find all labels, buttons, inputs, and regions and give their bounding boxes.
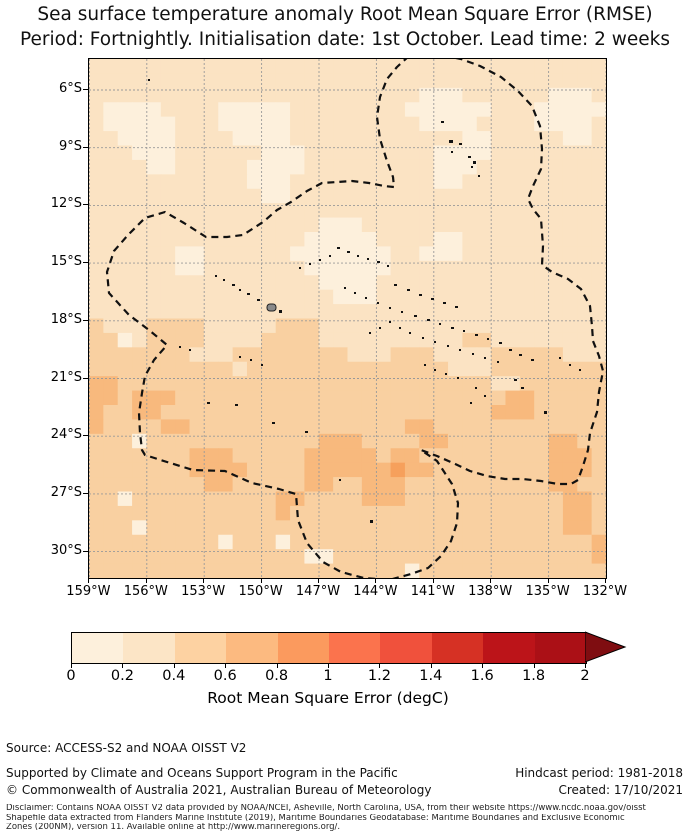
heatmap-cell xyxy=(319,275,334,290)
heatmap-cell xyxy=(462,117,477,132)
island-mark xyxy=(473,161,476,164)
heatmap-cell xyxy=(477,362,492,377)
heatmap-cell xyxy=(161,246,176,261)
heatmap-cell xyxy=(462,218,477,233)
heatmap-cell xyxy=(362,275,377,290)
heatmap-cell xyxy=(118,463,133,478)
heatmap-cell xyxy=(290,405,305,420)
heatmap-cell xyxy=(491,463,506,478)
heatmap-cell xyxy=(89,362,104,377)
heatmap-cell xyxy=(348,506,363,521)
heatmap-cell xyxy=(419,405,434,420)
tahiti-island xyxy=(267,304,276,311)
island-mark xyxy=(207,402,210,404)
heatmap-cell xyxy=(577,535,592,550)
heatmap-cell xyxy=(577,405,592,420)
y-tick-label: 27°S xyxy=(36,485,82,501)
heatmap-cell xyxy=(491,362,506,377)
heatmap-cell xyxy=(89,463,104,478)
heatmap-cell xyxy=(319,232,334,247)
heatmap-cell xyxy=(304,102,319,117)
heatmap-cell xyxy=(419,117,434,132)
heatmap-cell xyxy=(491,535,506,550)
heatmap-cell xyxy=(103,275,118,290)
heatmap-cell xyxy=(247,73,262,88)
heatmap-cell xyxy=(333,73,348,88)
heatmap-cell xyxy=(491,189,506,204)
heatmap-cell xyxy=(391,535,406,550)
heatmap-cell xyxy=(592,477,606,492)
heatmap-cell xyxy=(132,304,147,319)
heatmap-cell xyxy=(146,174,161,189)
heatmap-cell xyxy=(376,405,391,420)
heatmap-cell xyxy=(348,391,363,406)
heatmap-cell xyxy=(175,131,190,146)
heatmap-cell xyxy=(190,218,205,233)
island-mark xyxy=(544,411,547,414)
heatmap-cell xyxy=(505,246,520,261)
heatmap-cell xyxy=(491,117,506,132)
heatmap-cell xyxy=(276,73,291,88)
heatmap-cell xyxy=(319,405,334,420)
heatmap-cell xyxy=(434,102,449,117)
heatmap-cell xyxy=(146,391,161,406)
heatmap-cell xyxy=(304,275,319,290)
heatmap-cell xyxy=(362,290,377,305)
heatmap-cell xyxy=(592,174,606,189)
heatmap-cell xyxy=(290,419,305,434)
heatmap-cell xyxy=(491,59,506,74)
heatmap-cell xyxy=(534,448,549,463)
heatmap-cell xyxy=(175,174,190,189)
heatmap-cell xyxy=(276,290,291,305)
heatmap-cell xyxy=(505,448,520,463)
heatmap-cell xyxy=(563,506,578,521)
heatmap-cell xyxy=(304,520,319,535)
heatmap-cell xyxy=(204,506,219,521)
heatmap-cell xyxy=(146,102,161,117)
heatmap-cell xyxy=(190,362,205,377)
heatmap-cell xyxy=(520,520,535,535)
heatmap-cell xyxy=(405,160,420,175)
heatmap-cell xyxy=(549,520,564,535)
heatmap-cell xyxy=(520,564,535,578)
island-mark xyxy=(272,422,275,424)
heatmap-cell xyxy=(491,218,506,233)
heatmap-cell xyxy=(290,290,305,305)
heatmap-cell xyxy=(348,232,363,247)
island-mark xyxy=(337,247,340,249)
heatmap-cell xyxy=(89,405,104,420)
colorbar-tick-label: 1.8 xyxy=(509,668,559,684)
heatmap-cell xyxy=(391,520,406,535)
copyright-text: © Commonwealth of Australia 2021, Austra… xyxy=(6,783,431,797)
island-mark xyxy=(441,121,444,123)
heatmap-cell xyxy=(204,520,219,535)
heatmap-cell xyxy=(348,333,363,348)
heatmap-cell xyxy=(276,564,291,578)
heatmap-cell xyxy=(348,131,363,146)
heatmap-cell xyxy=(290,347,305,362)
heatmap-cell xyxy=(319,131,334,146)
heatmap-cell xyxy=(89,564,104,578)
heatmap-cell xyxy=(563,102,578,117)
heatmap-cell xyxy=(261,117,276,132)
heatmap-cell xyxy=(89,535,104,550)
heatmap-cell xyxy=(362,189,377,204)
heatmap-cell xyxy=(247,419,262,434)
heatmap-cell xyxy=(89,117,104,132)
heatmap-cell xyxy=(103,463,118,478)
heatmap-cell xyxy=(462,102,477,117)
colorbar xyxy=(71,632,587,664)
heatmap-cell xyxy=(577,391,592,406)
x-tick-label: 156°W xyxy=(116,584,176,600)
heatmap-cell xyxy=(520,506,535,521)
island-mark xyxy=(347,251,350,253)
disclaimer-line-3: Zones (200NM), version 11. Available onl… xyxy=(6,823,690,833)
heatmap-cell xyxy=(592,290,606,305)
heatmap-cell xyxy=(204,405,219,420)
heatmap-cell xyxy=(319,290,334,305)
heatmap-cell xyxy=(304,304,319,319)
heatmap-cell xyxy=(462,477,477,492)
heatmap-cell xyxy=(132,102,147,117)
heatmap-cell xyxy=(175,160,190,175)
heatmap-cell xyxy=(592,218,606,233)
heatmap-cell xyxy=(204,117,219,132)
heatmap-cell xyxy=(549,160,564,175)
heatmap-cell xyxy=(419,160,434,175)
heatmap-cell xyxy=(434,290,449,305)
heatmap-cell xyxy=(175,304,190,319)
heatmap-cell xyxy=(261,506,276,521)
heatmap-cell xyxy=(405,405,420,420)
heatmap-cell xyxy=(592,131,606,146)
heatmap-cell xyxy=(190,304,205,319)
heatmap-cell xyxy=(233,275,248,290)
island-mark xyxy=(239,289,241,291)
heatmap-cell xyxy=(549,347,564,362)
heatmap-cell xyxy=(462,347,477,362)
heatmap-cell xyxy=(448,405,463,420)
colorbar-tick-label: 1.2 xyxy=(354,668,404,684)
heatmap-cell xyxy=(505,290,520,305)
heatmap-cell xyxy=(534,477,549,492)
heatmap-cell xyxy=(505,405,520,420)
heatmap-cell xyxy=(391,218,406,233)
colorbar-segment xyxy=(175,633,226,663)
heatmap-cell xyxy=(204,102,219,117)
y-tick-label: 15°S xyxy=(36,254,82,270)
heatmap-cell xyxy=(290,59,305,74)
heatmap-cell xyxy=(247,275,262,290)
x-tick-mark xyxy=(203,578,204,583)
heatmap-cell xyxy=(520,463,535,478)
heatmap-cell xyxy=(577,117,592,132)
map-plot-area xyxy=(88,58,607,579)
heatmap-cell xyxy=(549,189,564,204)
heatmap-cell xyxy=(405,290,420,305)
heatmap-cell xyxy=(592,506,606,521)
heatmap-cell xyxy=(405,362,420,377)
heatmap-cell xyxy=(290,304,305,319)
heatmap-cell xyxy=(419,73,434,88)
heatmap-cell xyxy=(491,304,506,319)
heatmap-cell xyxy=(563,463,578,478)
heatmap-cell xyxy=(577,232,592,247)
island-mark xyxy=(339,479,341,481)
heatmap-cell xyxy=(405,218,420,233)
heatmap-cell xyxy=(118,564,133,578)
disclaimer-line-2: Shapefile data extracted from Flanders M… xyxy=(6,814,690,824)
island-mark xyxy=(459,143,462,145)
heatmap-cell xyxy=(405,246,420,261)
y-tick-label: 30°S xyxy=(36,543,82,559)
heatmap-cell xyxy=(333,102,348,117)
heatmap-cell xyxy=(505,520,520,535)
heatmap-cell xyxy=(261,448,276,463)
heatmap-cell xyxy=(175,232,190,247)
heatmap-cell xyxy=(419,290,434,305)
heatmap-cell xyxy=(592,246,606,261)
heatmap-cell xyxy=(434,391,449,406)
heatmap-cell xyxy=(276,232,291,247)
heatmap-cell xyxy=(161,102,176,117)
heatmap-cell xyxy=(319,160,334,175)
heatmap-cell xyxy=(175,117,190,132)
heatmap-cell xyxy=(434,333,449,348)
island-mark xyxy=(447,345,449,347)
heatmap-cell xyxy=(204,362,219,377)
heatmap-cell xyxy=(592,160,606,175)
heatmap-cell xyxy=(491,160,506,175)
heatmap-cell xyxy=(534,506,549,521)
heatmap-cell xyxy=(333,520,348,535)
heatmap-cell xyxy=(405,477,420,492)
heatmap-cell xyxy=(477,117,492,132)
heatmap-cell xyxy=(391,189,406,204)
heatmap-cell xyxy=(505,218,520,233)
heatmap-cell xyxy=(448,246,463,261)
heatmap-cell xyxy=(348,117,363,132)
heatmap-cell xyxy=(276,347,291,362)
heatmap-cell xyxy=(247,347,262,362)
heatmap-cell xyxy=(118,246,133,261)
heatmap-cell xyxy=(333,506,348,521)
heatmap-cell xyxy=(362,506,377,521)
heatmap-cell xyxy=(233,73,248,88)
heatmap-cell xyxy=(290,520,305,535)
heatmap-cell xyxy=(247,391,262,406)
heatmap-cell xyxy=(505,347,520,362)
x-tick-mark xyxy=(375,578,376,583)
heatmap-cell xyxy=(319,102,334,117)
heatmap-cell xyxy=(218,506,233,521)
heatmap-cell xyxy=(505,59,520,74)
heatmap-cell xyxy=(376,506,391,521)
heatmap-cell xyxy=(290,448,305,463)
heatmap-cell xyxy=(118,347,133,362)
heatmap-cell xyxy=(161,131,176,146)
heatmap-cell xyxy=(362,520,377,535)
heatmap-cell xyxy=(534,362,549,377)
heatmap-cell xyxy=(233,506,248,521)
heatmap-cell xyxy=(233,117,248,132)
heatmap-cell xyxy=(190,506,205,521)
heatmap-cell xyxy=(448,362,463,377)
heatmap-cell xyxy=(276,218,291,233)
heatmap-cell xyxy=(319,362,334,377)
heatmap-cell xyxy=(549,275,564,290)
heatmap-cell xyxy=(333,131,348,146)
heatmap-cell xyxy=(247,131,262,146)
heatmap-cell xyxy=(462,131,477,146)
heatmap-cell xyxy=(577,477,592,492)
y-tick-label: 18°S xyxy=(36,312,82,328)
island-mark xyxy=(357,255,359,257)
heatmap-cell xyxy=(204,59,219,74)
heatmap-cell xyxy=(103,218,118,233)
heatmap-cell xyxy=(505,275,520,290)
heatmap-cell xyxy=(434,174,449,189)
heatmap-cell xyxy=(290,535,305,550)
heatmap-cell xyxy=(362,102,377,117)
heatmap-cell xyxy=(333,117,348,132)
heatmap-cell xyxy=(118,218,133,233)
heatmap-cell xyxy=(419,131,434,146)
heatmap-cell xyxy=(477,347,492,362)
heatmap-cell xyxy=(362,405,377,420)
heatmap-cell xyxy=(391,477,406,492)
heatmap-cell xyxy=(462,232,477,247)
heatmap-cell xyxy=(563,520,578,535)
heatmap-cell xyxy=(348,448,363,463)
heatmap-cell xyxy=(391,347,406,362)
heatmap-cell xyxy=(319,73,334,88)
heatmap-cell xyxy=(491,391,506,406)
heatmap-cell xyxy=(146,275,161,290)
heatmap-cell xyxy=(520,160,535,175)
heatmap-cell xyxy=(161,232,176,247)
heatmap-cell xyxy=(118,189,133,204)
heatmap-cell xyxy=(247,463,262,478)
heatmap-cell xyxy=(520,102,535,117)
heatmap-cell xyxy=(348,477,363,492)
heatmap-cell xyxy=(520,419,535,434)
heatmap-cell xyxy=(534,419,549,434)
heatmap-cell xyxy=(563,290,578,305)
heatmap-cell xyxy=(276,506,291,521)
heatmap-cell xyxy=(175,448,190,463)
heatmap-cell xyxy=(549,506,564,521)
heatmap-cell xyxy=(491,131,506,146)
heatmap-cell xyxy=(304,463,319,478)
heatmap-cell xyxy=(376,347,391,362)
heatmap-cell xyxy=(89,520,104,535)
heatmap-cell xyxy=(161,304,176,319)
x-tick-label: 132°W xyxy=(575,584,635,600)
heatmap-cell xyxy=(118,275,133,290)
heatmap-cell xyxy=(434,477,449,492)
x-tick-label: 144°W xyxy=(345,584,405,600)
colorbar-segment xyxy=(380,633,431,663)
heatmap-cell xyxy=(376,362,391,377)
heatmap-cell xyxy=(419,232,434,247)
heatmap-cell xyxy=(520,59,535,74)
island-mark xyxy=(389,307,391,309)
colorbar-tick-label: 0.4 xyxy=(149,668,199,684)
heatmap-cell xyxy=(146,59,161,74)
heatmap-cell xyxy=(563,391,578,406)
y-tick-mark xyxy=(83,493,88,494)
heatmap-cell xyxy=(549,174,564,189)
heatmap-cell xyxy=(520,131,535,146)
heatmap-cell xyxy=(146,290,161,305)
heatmap-cell xyxy=(204,535,219,550)
x-tick-mark xyxy=(261,578,262,583)
island-mark xyxy=(250,359,252,361)
island-mark xyxy=(414,315,417,317)
heatmap-cell xyxy=(276,246,291,261)
heatmap-cell xyxy=(118,405,133,420)
heatmap-cell xyxy=(103,232,118,247)
heatmap-cell xyxy=(362,463,377,478)
island-mark xyxy=(235,404,238,406)
heatmap-cell xyxy=(477,564,492,578)
heatmap-cell xyxy=(391,117,406,132)
heatmap-cell xyxy=(477,391,492,406)
heatmap-cell xyxy=(319,535,334,550)
heatmap-cell xyxy=(175,520,190,535)
heatmap-cell xyxy=(89,218,104,233)
heatmap-cell xyxy=(89,304,104,319)
heatmap-cell xyxy=(520,246,535,261)
heatmap-cell xyxy=(376,333,391,348)
island-mark xyxy=(399,327,401,329)
heatmap-cell xyxy=(563,117,578,132)
x-tick-mark xyxy=(548,578,549,583)
island-mark xyxy=(279,310,282,313)
x-tick-mark xyxy=(605,578,606,583)
heatmap-cell xyxy=(333,362,348,377)
heatmap-cell xyxy=(146,189,161,204)
island-mark xyxy=(449,140,453,143)
island-mark xyxy=(579,369,581,371)
heatmap-cell xyxy=(132,59,147,74)
heatmap-cell xyxy=(520,362,535,377)
heatmap-cell xyxy=(304,362,319,377)
heatmap-cell xyxy=(577,102,592,117)
heatmap-cell xyxy=(103,160,118,175)
island-mark xyxy=(514,379,517,381)
heatmap-cell xyxy=(434,304,449,319)
rmse-heatmap-svg xyxy=(89,59,606,578)
heatmap-cell xyxy=(577,333,592,348)
heatmap-cell xyxy=(549,131,564,146)
heatmap-cell xyxy=(218,535,233,550)
heatmap-cell xyxy=(190,520,205,535)
heatmap-cell xyxy=(592,405,606,420)
heatmap-cell xyxy=(534,347,549,362)
heatmap-cell xyxy=(118,174,133,189)
heatmap-cell xyxy=(276,131,291,146)
heatmap-cell xyxy=(304,347,319,362)
heatmap-cell xyxy=(247,232,262,247)
heatmap-cell xyxy=(391,405,406,420)
heatmap-cell xyxy=(175,102,190,117)
heatmap-cell xyxy=(161,405,176,420)
